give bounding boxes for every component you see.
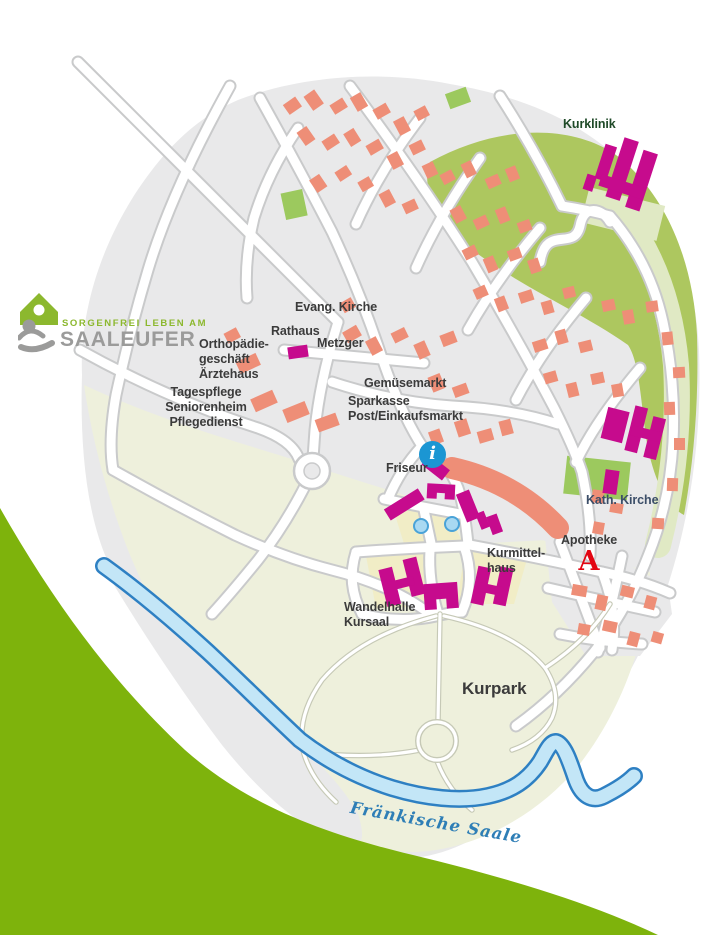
logo: SORGENFREI LEBEN AM SAALEUFER bbox=[18, 291, 218, 355]
label-metzger: Metzger bbox=[317, 336, 364, 351]
label-tagespflege: Tagespflege Seniorenheim Pflegedienst bbox=[148, 385, 264, 429]
label-kath-kirche: Kath. Kirche bbox=[586, 493, 658, 508]
label-friseur: Friseur bbox=[386, 461, 428, 476]
logo-house-icon bbox=[18, 291, 60, 353]
label-kurmittelhaus: Kurmittel- haus bbox=[487, 546, 545, 576]
apotheke-a-icon: A bbox=[574, 548, 604, 578]
label-gemuesemarkt: Gemüsemarkt bbox=[364, 376, 446, 391]
logo-brand: SAALEUFER bbox=[60, 328, 196, 352]
label-evang-kirche: Evang. Kirche bbox=[295, 300, 377, 315]
map-artwork bbox=[0, 0, 720, 935]
label-sparkasse: Sparkasse Post/Einkaufsmarkt bbox=[348, 394, 463, 424]
label-orthopaedie: Orthopädie- geschäft Ärztehaus bbox=[199, 337, 269, 381]
label-rathaus: Rathaus bbox=[271, 324, 320, 339]
label-kurklinik: Kurklinik bbox=[563, 117, 616, 132]
label-wandelhalle: Wandelhalle Kursaal bbox=[344, 600, 415, 630]
town-map: SORGENFREI LEBEN AM SAALEUFER i A Kurkli… bbox=[0, 0, 720, 935]
label-apotheke: Apotheke bbox=[561, 533, 617, 548]
fountain-east bbox=[445, 517, 459, 531]
roundabout bbox=[294, 453, 330, 489]
label-kurpark: Kurpark bbox=[462, 679, 527, 699]
fountain-west bbox=[414, 519, 428, 533]
